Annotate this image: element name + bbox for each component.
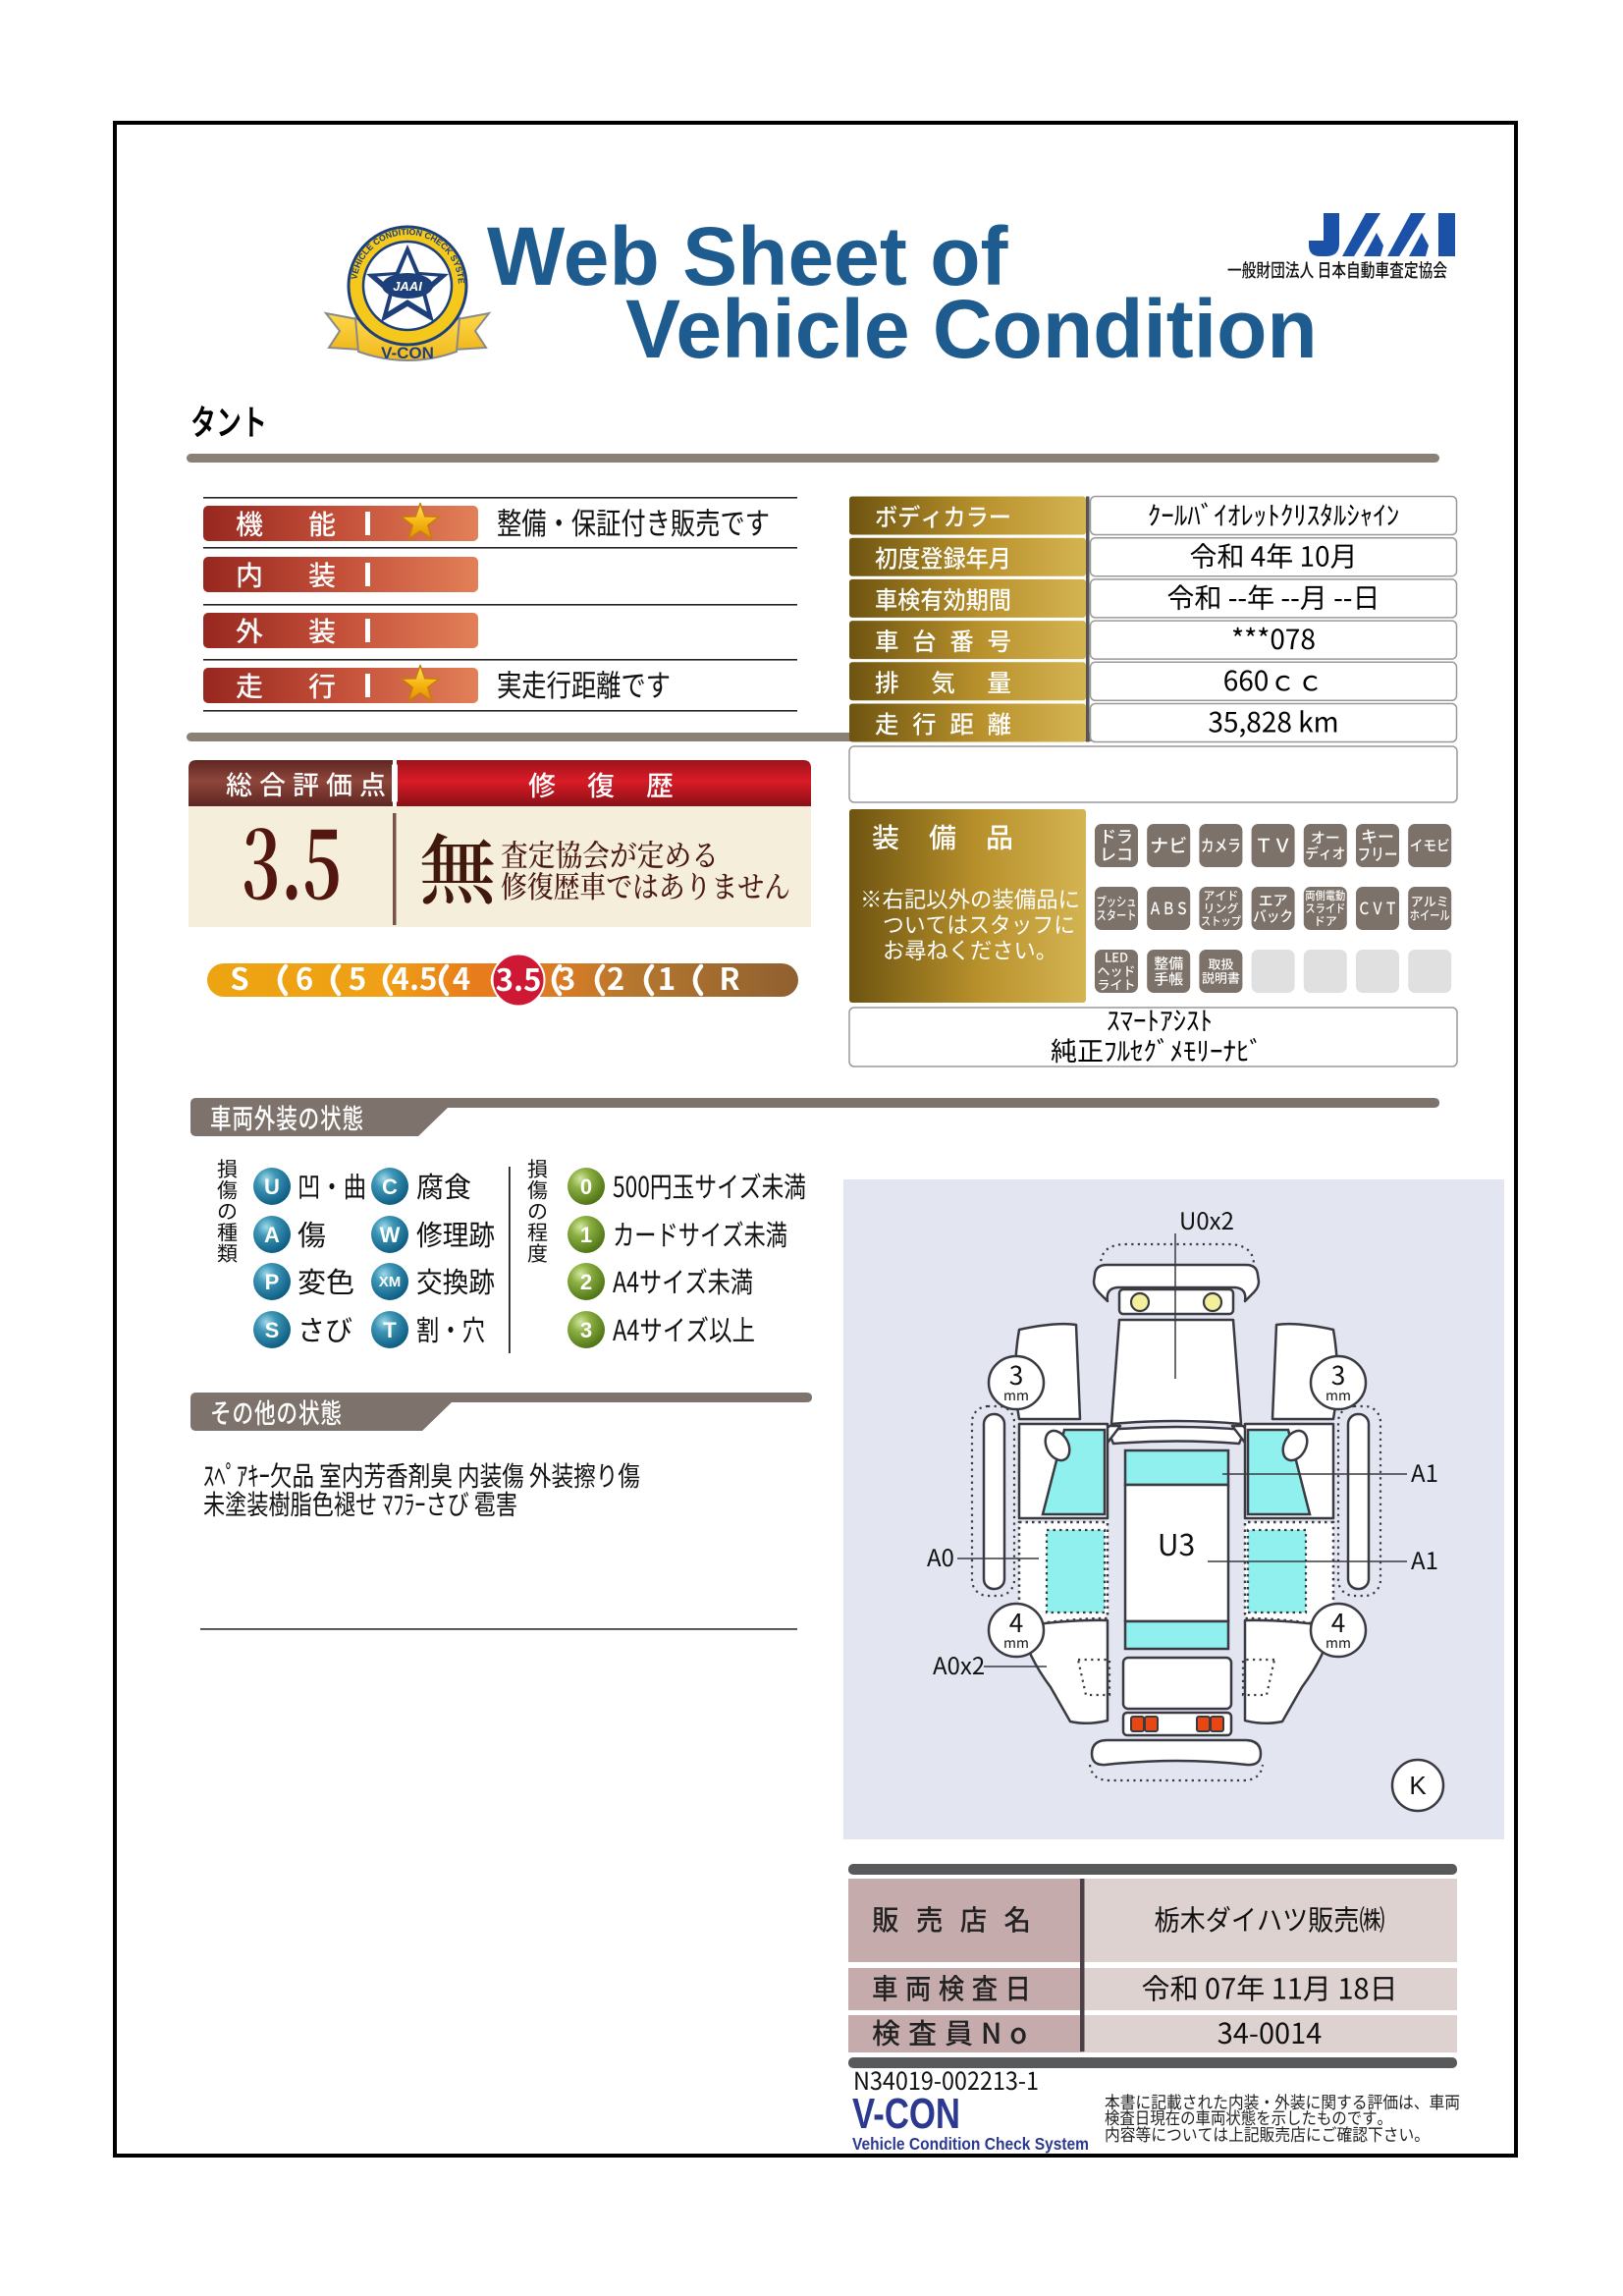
svg-text:V-CON: V-CON	[852, 2090, 960, 2138]
svg-text:3: 3	[580, 1318, 592, 1342]
svg-text:S: S	[265, 1318, 280, 1342]
svg-text:1: 1	[580, 1223, 592, 1247]
svg-text:Vehicle Condition Check System: Vehicle Condition Check System	[852, 2134, 1089, 2154]
svg-text:K: K	[1409, 1771, 1427, 1800]
svg-text:P: P	[265, 1270, 280, 1294]
svg-text:A: A	[264, 1223, 280, 1247]
svg-text:T: T	[383, 1318, 397, 1342]
svg-text:C: C	[382, 1175, 398, 1199]
svg-text:2: 2	[580, 1270, 592, 1294]
svg-text:XM: XM	[379, 1274, 402, 1290]
svg-text:W: W	[380, 1223, 401, 1247]
svg-text:U: U	[264, 1175, 280, 1199]
svg-text:0: 0	[580, 1175, 592, 1199]
